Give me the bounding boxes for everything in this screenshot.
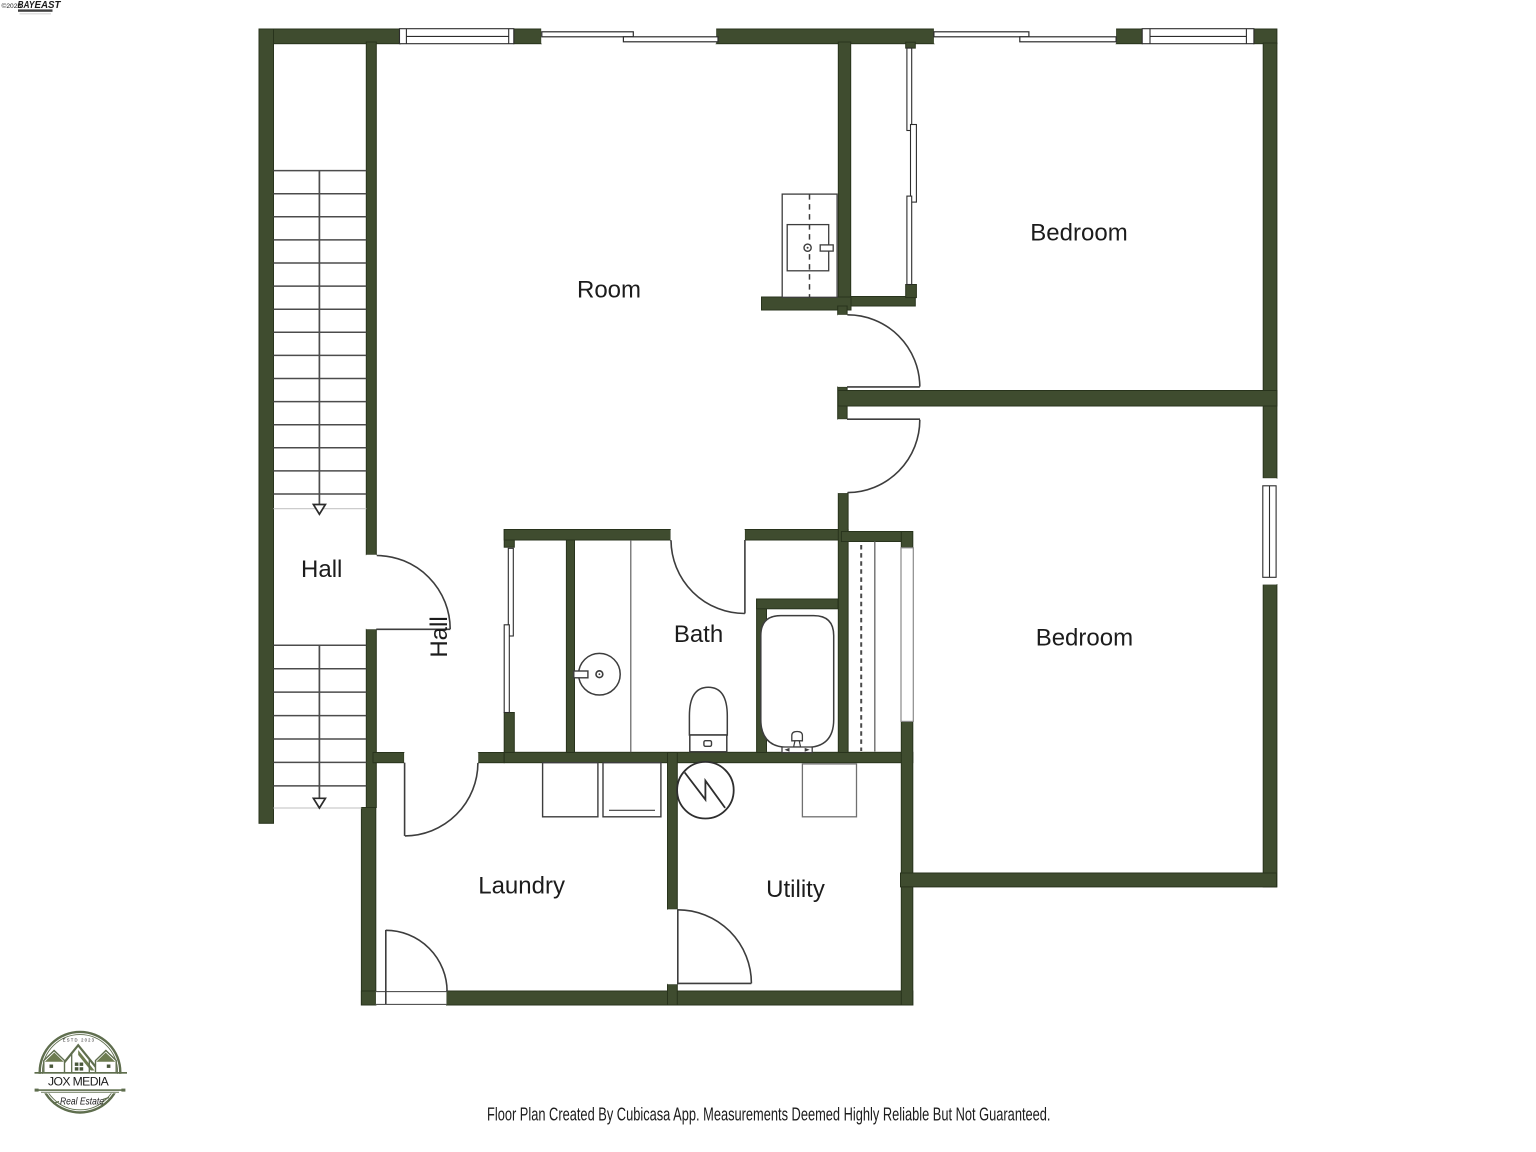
svg-text:Real Estate: Real Estate (60, 1096, 104, 1108)
svg-text:Laundry: Laundry (478, 872, 565, 899)
svg-text:Bath: Bath (674, 621, 723, 648)
svg-text:Floor Plan Created By Cubicasa: Floor Plan Created By Cubicasa App. Meas… (487, 1105, 1051, 1125)
svg-text:Bedroom: Bedroom (1036, 625, 1133, 652)
svg-text:Bedroom: Bedroom (1030, 219, 1127, 246)
svg-text:Utility: Utility (766, 876, 825, 903)
svg-text:Hall: Hall (301, 556, 342, 583)
svg-text:Room: Room (577, 276, 641, 303)
svg-text:Hall: Hall (426, 616, 453, 657)
svg-text:ESTD 2023: ESTD 2023 (63, 1038, 95, 1043)
svg-text:JOX MEDIA: JOX MEDIA (48, 1075, 111, 1089)
